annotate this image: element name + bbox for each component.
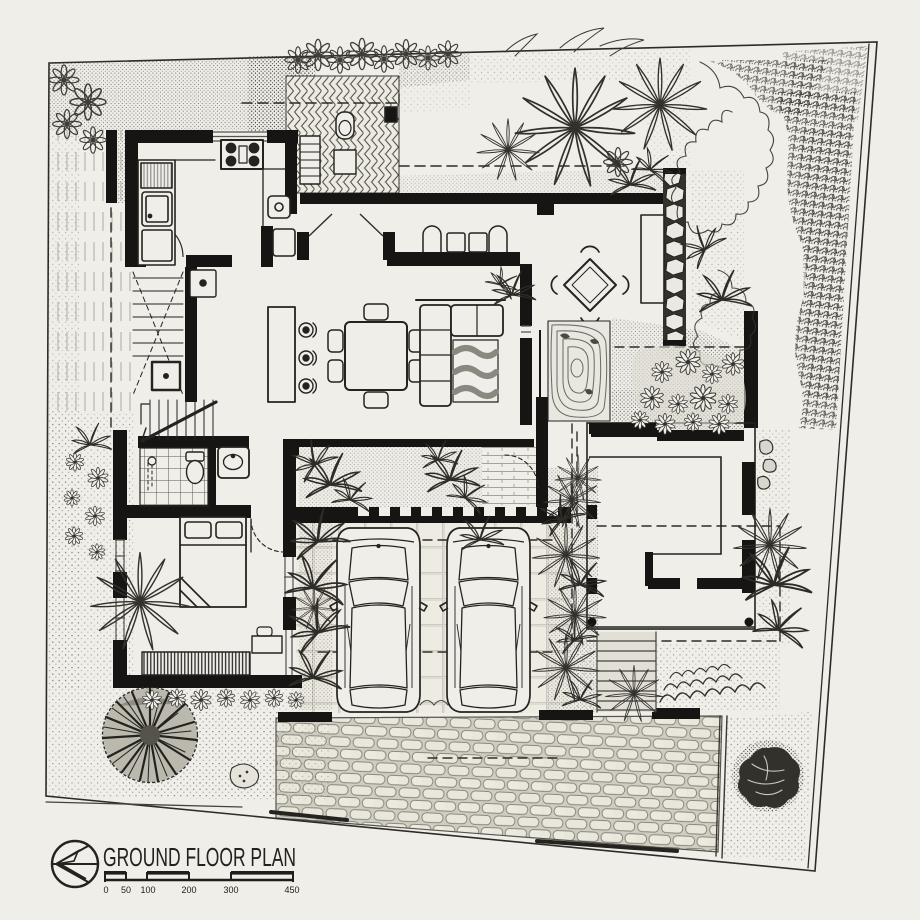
svg-text:300: 300 (223, 885, 238, 895)
svg-text:0: 0 (103, 885, 108, 895)
svg-text:100: 100 (140, 885, 155, 895)
svg-text:GROUND FLOOR PLAN: GROUND FLOOR PLAN (103, 843, 296, 872)
svg-text:50: 50 (121, 885, 131, 895)
svg-text:200: 200 (181, 885, 196, 895)
svg-text:450: 450 (284, 885, 299, 895)
